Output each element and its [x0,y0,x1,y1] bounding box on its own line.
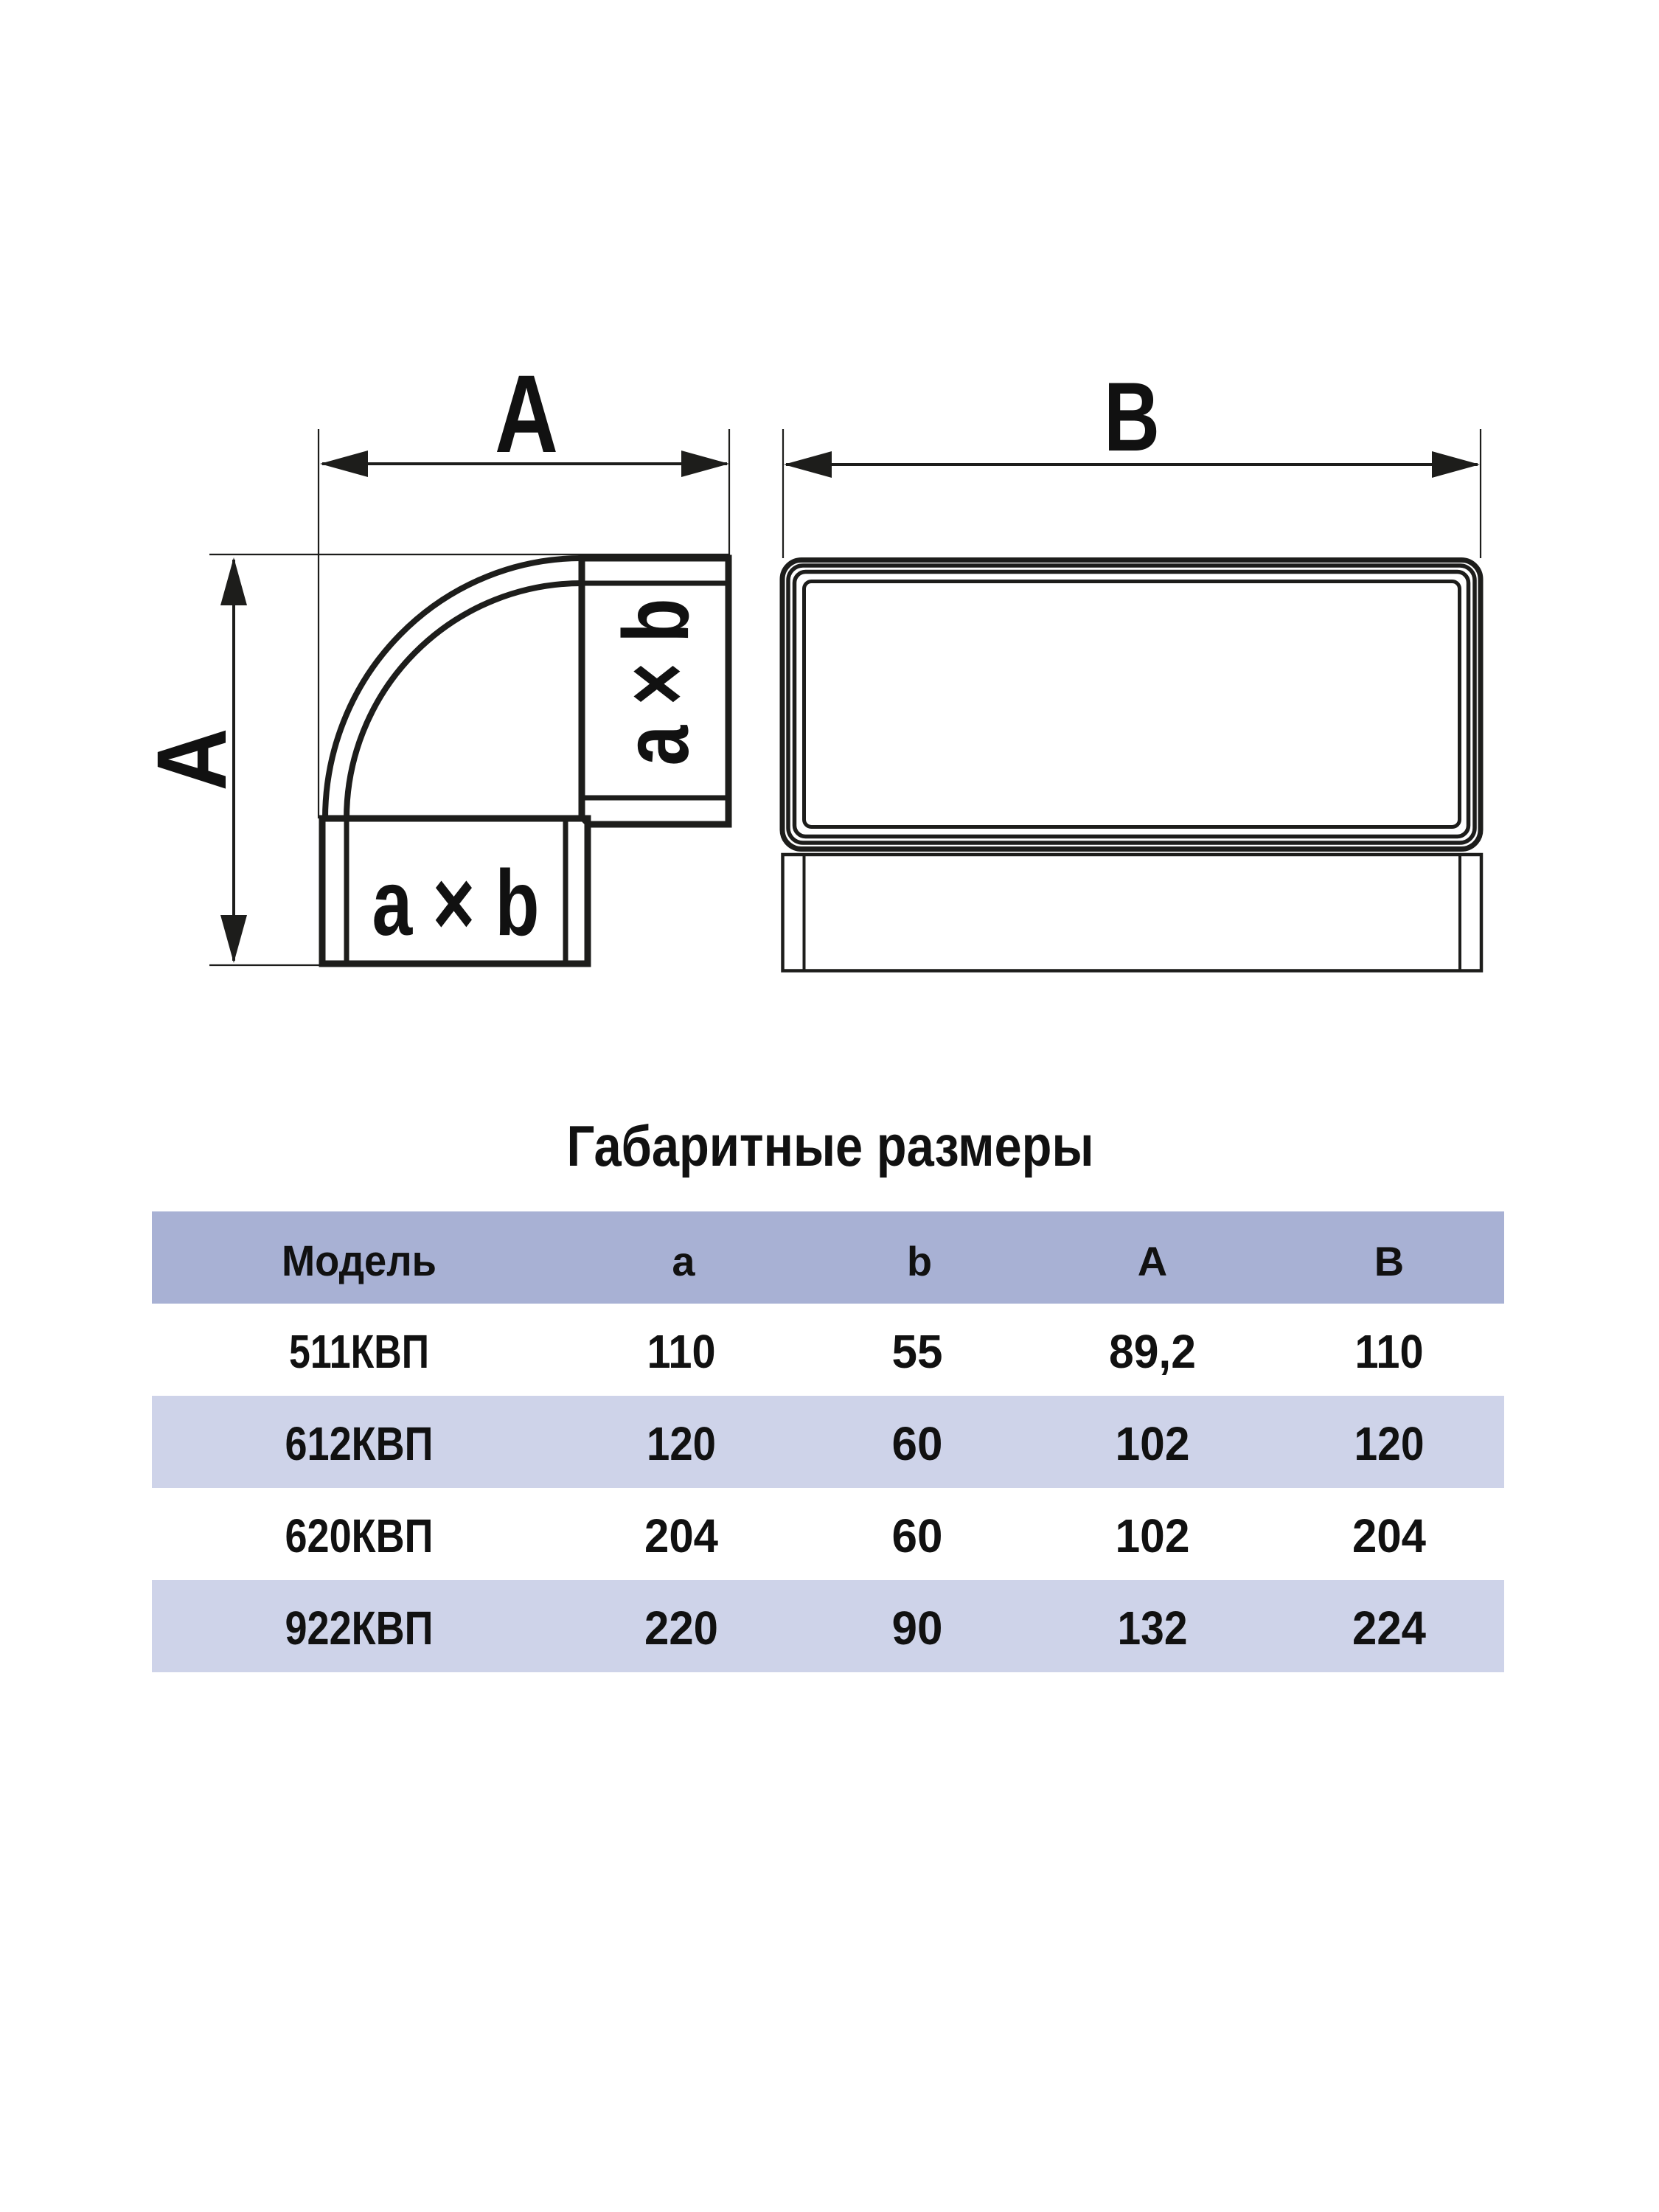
svg-text:922КВП: 922КВП [285,1601,434,1655]
svg-text:60: 60 [892,1509,943,1562]
svg-text:89,2: 89,2 [1109,1325,1196,1378]
svg-text:B: B [1104,363,1160,472]
svg-text:B: B [1374,1238,1404,1284]
svg-text:102: 102 [1116,1509,1190,1562]
svg-text:132: 132 [1118,1601,1188,1655]
svg-text:612КВП: 612КВП [285,1417,434,1470]
svg-text:204: 204 [1352,1509,1426,1562]
svg-text:60: 60 [892,1417,943,1470]
svg-text:55: 55 [892,1325,943,1378]
svg-text:A: A [137,728,247,791]
svg-text:a × b: a × b [604,599,708,766]
svg-text:A: A [1138,1238,1167,1284]
svg-text:90: 90 [892,1601,943,1655]
svg-text:102: 102 [1116,1417,1190,1470]
svg-text:b: b [907,1238,932,1284]
svg-text:a × b: a × b [372,851,540,955]
svg-text:620КВП: 620КВП [285,1509,434,1562]
svg-text:511КВП: 511КВП [289,1325,429,1378]
svg-text:Модель: Модель [282,1237,437,1285]
svg-text:Габаритные размеры: Габаритные размеры [567,1113,1094,1178]
svg-text:120: 120 [647,1417,716,1470]
svg-text:110: 110 [1355,1325,1424,1378]
svg-text:120: 120 [1354,1417,1425,1470]
svg-text:110: 110 [647,1325,716,1378]
svg-text:220: 220 [644,1601,718,1655]
svg-text:A: A [495,352,558,476]
svg-text:224: 224 [1352,1601,1426,1655]
svg-text:204: 204 [644,1509,718,1562]
svg-text:a: a [672,1238,695,1284]
